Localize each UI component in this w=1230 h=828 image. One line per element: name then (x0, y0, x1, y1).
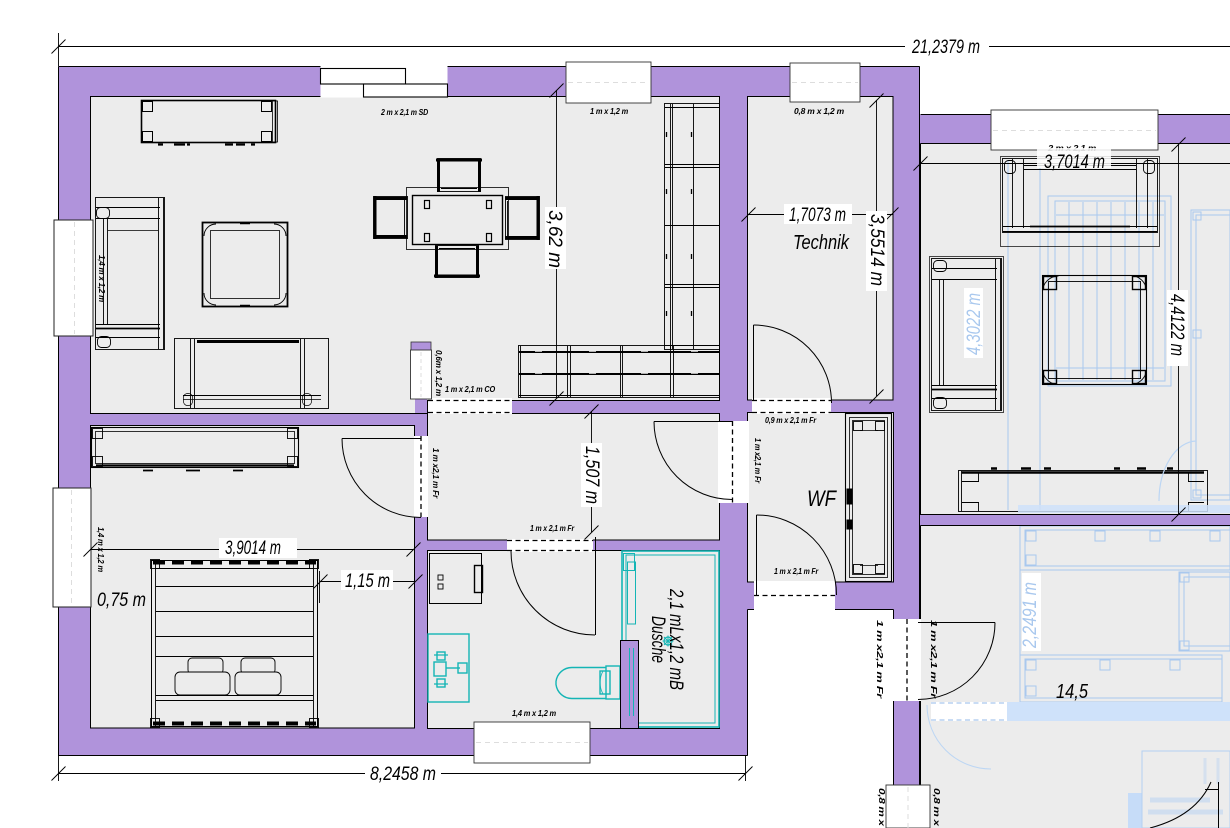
svg-text:21,2379 m: 21,2379 m (911, 37, 980, 58)
svg-text:2 m x 2,1 m SD: 2 m x 2,1 m SD (380, 108, 428, 117)
svg-text:0,8 m x 1,: 0,8 m x 1, (877, 788, 886, 828)
svg-text:1,7073 m: 1,7073 m (789, 205, 846, 226)
svg-text:4,4122 m: 4,4122 m (1166, 294, 1187, 356)
svg-text:1,4 m x 1,2 m: 1,4 m x 1,2 m (96, 527, 105, 572)
svg-text:0,6m x 1,2 m: 0,6m x 1,2 m (434, 350, 443, 396)
svg-text:14,5: 14,5 (1056, 681, 1089, 703)
svg-text:1 m x2,1 m Fr: 1 m x2,1 m Fr (929, 620, 938, 700)
svg-text:0,9 m x 2,1 m Fr: 0,9 m x 2,1 m Fr (765, 416, 817, 425)
svg-text:0,8 m x 1,: 0,8 m x 1, (932, 788, 941, 828)
svg-text:WF: WF (807, 486, 837, 511)
svg-text:1 m x 2,1 m CO: 1 m x 2,1 m CO (445, 385, 496, 394)
svg-text:1,507 m: 1,507 m (581, 446, 602, 504)
svg-text:4,3022 m: 4,3022 m (964, 293, 985, 355)
svg-text:1 m x 2,1 m Fr: 1 m x 2,1 m Fr (530, 524, 575, 533)
svg-text:3,9014 m: 3,9014 m (225, 538, 281, 559)
svg-text:2,2491 m: 2,2491 m (1020, 582, 1041, 649)
svg-text:0,8 m x 1,2 m: 0,8 m x 1,2 m (794, 107, 844, 116)
svg-text:1 m x2,1 m Fr: 1 m x2,1 m Fr (753, 438, 762, 484)
svg-text:1,15 m: 1,15 m (345, 571, 390, 592)
svg-text:Dusche: Dusche (647, 616, 668, 663)
svg-text:3,7014 m: 3,7014 m (1044, 152, 1105, 173)
svg-text:1 m x2,1 m Fr: 1 m x2,1 m Fr (875, 620, 884, 700)
svg-text:1 m x 1,2 m: 1 m x 1,2 m (590, 107, 628, 116)
svg-text:8,2458 m: 8,2458 m (370, 764, 436, 785)
svg-text:0,75 m: 0,75 m (97, 590, 146, 611)
svg-text:1,4 m x 1,2 m: 1,4 m x 1,2 m (512, 709, 556, 718)
svg-text:3,5514 m: 3,5514 m (866, 214, 887, 286)
svg-text:1 m x 2,1 m Fr: 1 m x 2,1 m Fr (774, 567, 819, 576)
svg-text:3,62 m: 3,62 m (544, 210, 565, 268)
svg-text:1 m x2,1 m Fr: 1 m x2,1 m Fr (431, 448, 440, 499)
svg-text:Technik: Technik (793, 232, 850, 254)
svg-text:1,4 m x 1,2 m: 1,4 m x 1,2 m (97, 255, 106, 302)
